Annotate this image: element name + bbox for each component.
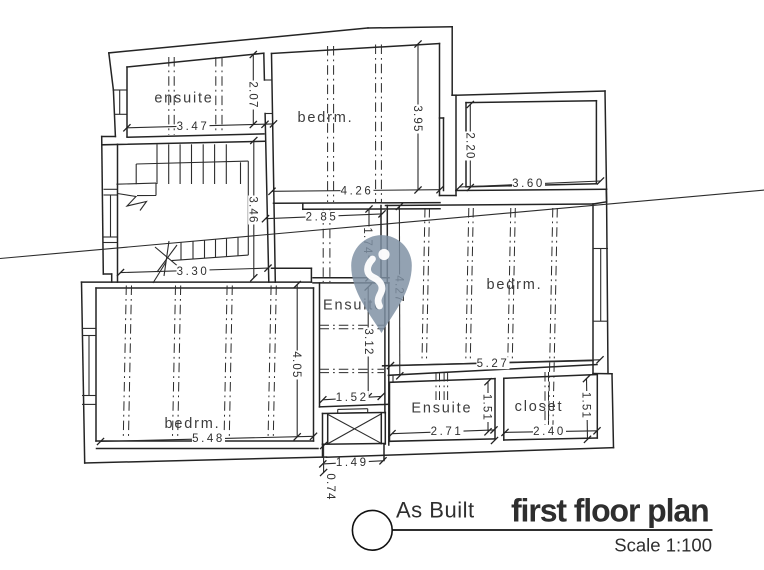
svg-text:2.85: 2.85	[306, 211, 339, 223]
svg-text:1.51: 1.51	[481, 394, 493, 421]
svg-text:2.07: 2.07	[246, 81, 258, 108]
svg-text:4.26: 4.26	[341, 186, 374, 198]
svg-text:3.46: 3.46	[247, 196, 259, 223]
svg-text:ensuite: ensuite	[154, 91, 213, 107]
svg-text:2.71: 2.71	[431, 426, 464, 438]
svg-text:bedrm.: bedrm.	[298, 110, 354, 126]
svg-text:1.51: 1.51	[579, 392, 591, 419]
svg-text:1.49: 1.49	[336, 457, 369, 469]
svg-text:2.40: 2.40	[533, 426, 566, 438]
svg-text:closet: closet	[515, 399, 564, 415]
svg-text:Ensuite: Ensuite	[411, 401, 472, 417]
svg-text:2.20: 2.20	[463, 132, 475, 159]
svg-text:As Built: As Built	[396, 498, 475, 523]
svg-text:1.52: 1.52	[336, 392, 369, 404]
svg-text:0.74: 0.74	[324, 473, 336, 500]
svg-text:first floor plan: first floor plan	[511, 493, 709, 529]
svg-text:5.48: 5.48	[192, 433, 225, 445]
svg-text:3.12: 3.12	[362, 328, 374, 355]
svg-text:5.27: 5.27	[477, 358, 510, 370]
svg-text:3.95: 3.95	[411, 105, 423, 132]
svg-text:3.47: 3.47	[177, 121, 210, 133]
svg-text:3.60: 3.60	[512, 178, 545, 190]
svg-text:3.30: 3.30	[177, 266, 210, 278]
svg-text:4.05: 4.05	[290, 351, 302, 378]
svg-text:Scale 1:100: Scale 1:100	[614, 535, 712, 556]
svg-text:bedrm.: bedrm.	[165, 416, 221, 432]
svg-text:bedrm.: bedrm.	[487, 277, 543, 293]
